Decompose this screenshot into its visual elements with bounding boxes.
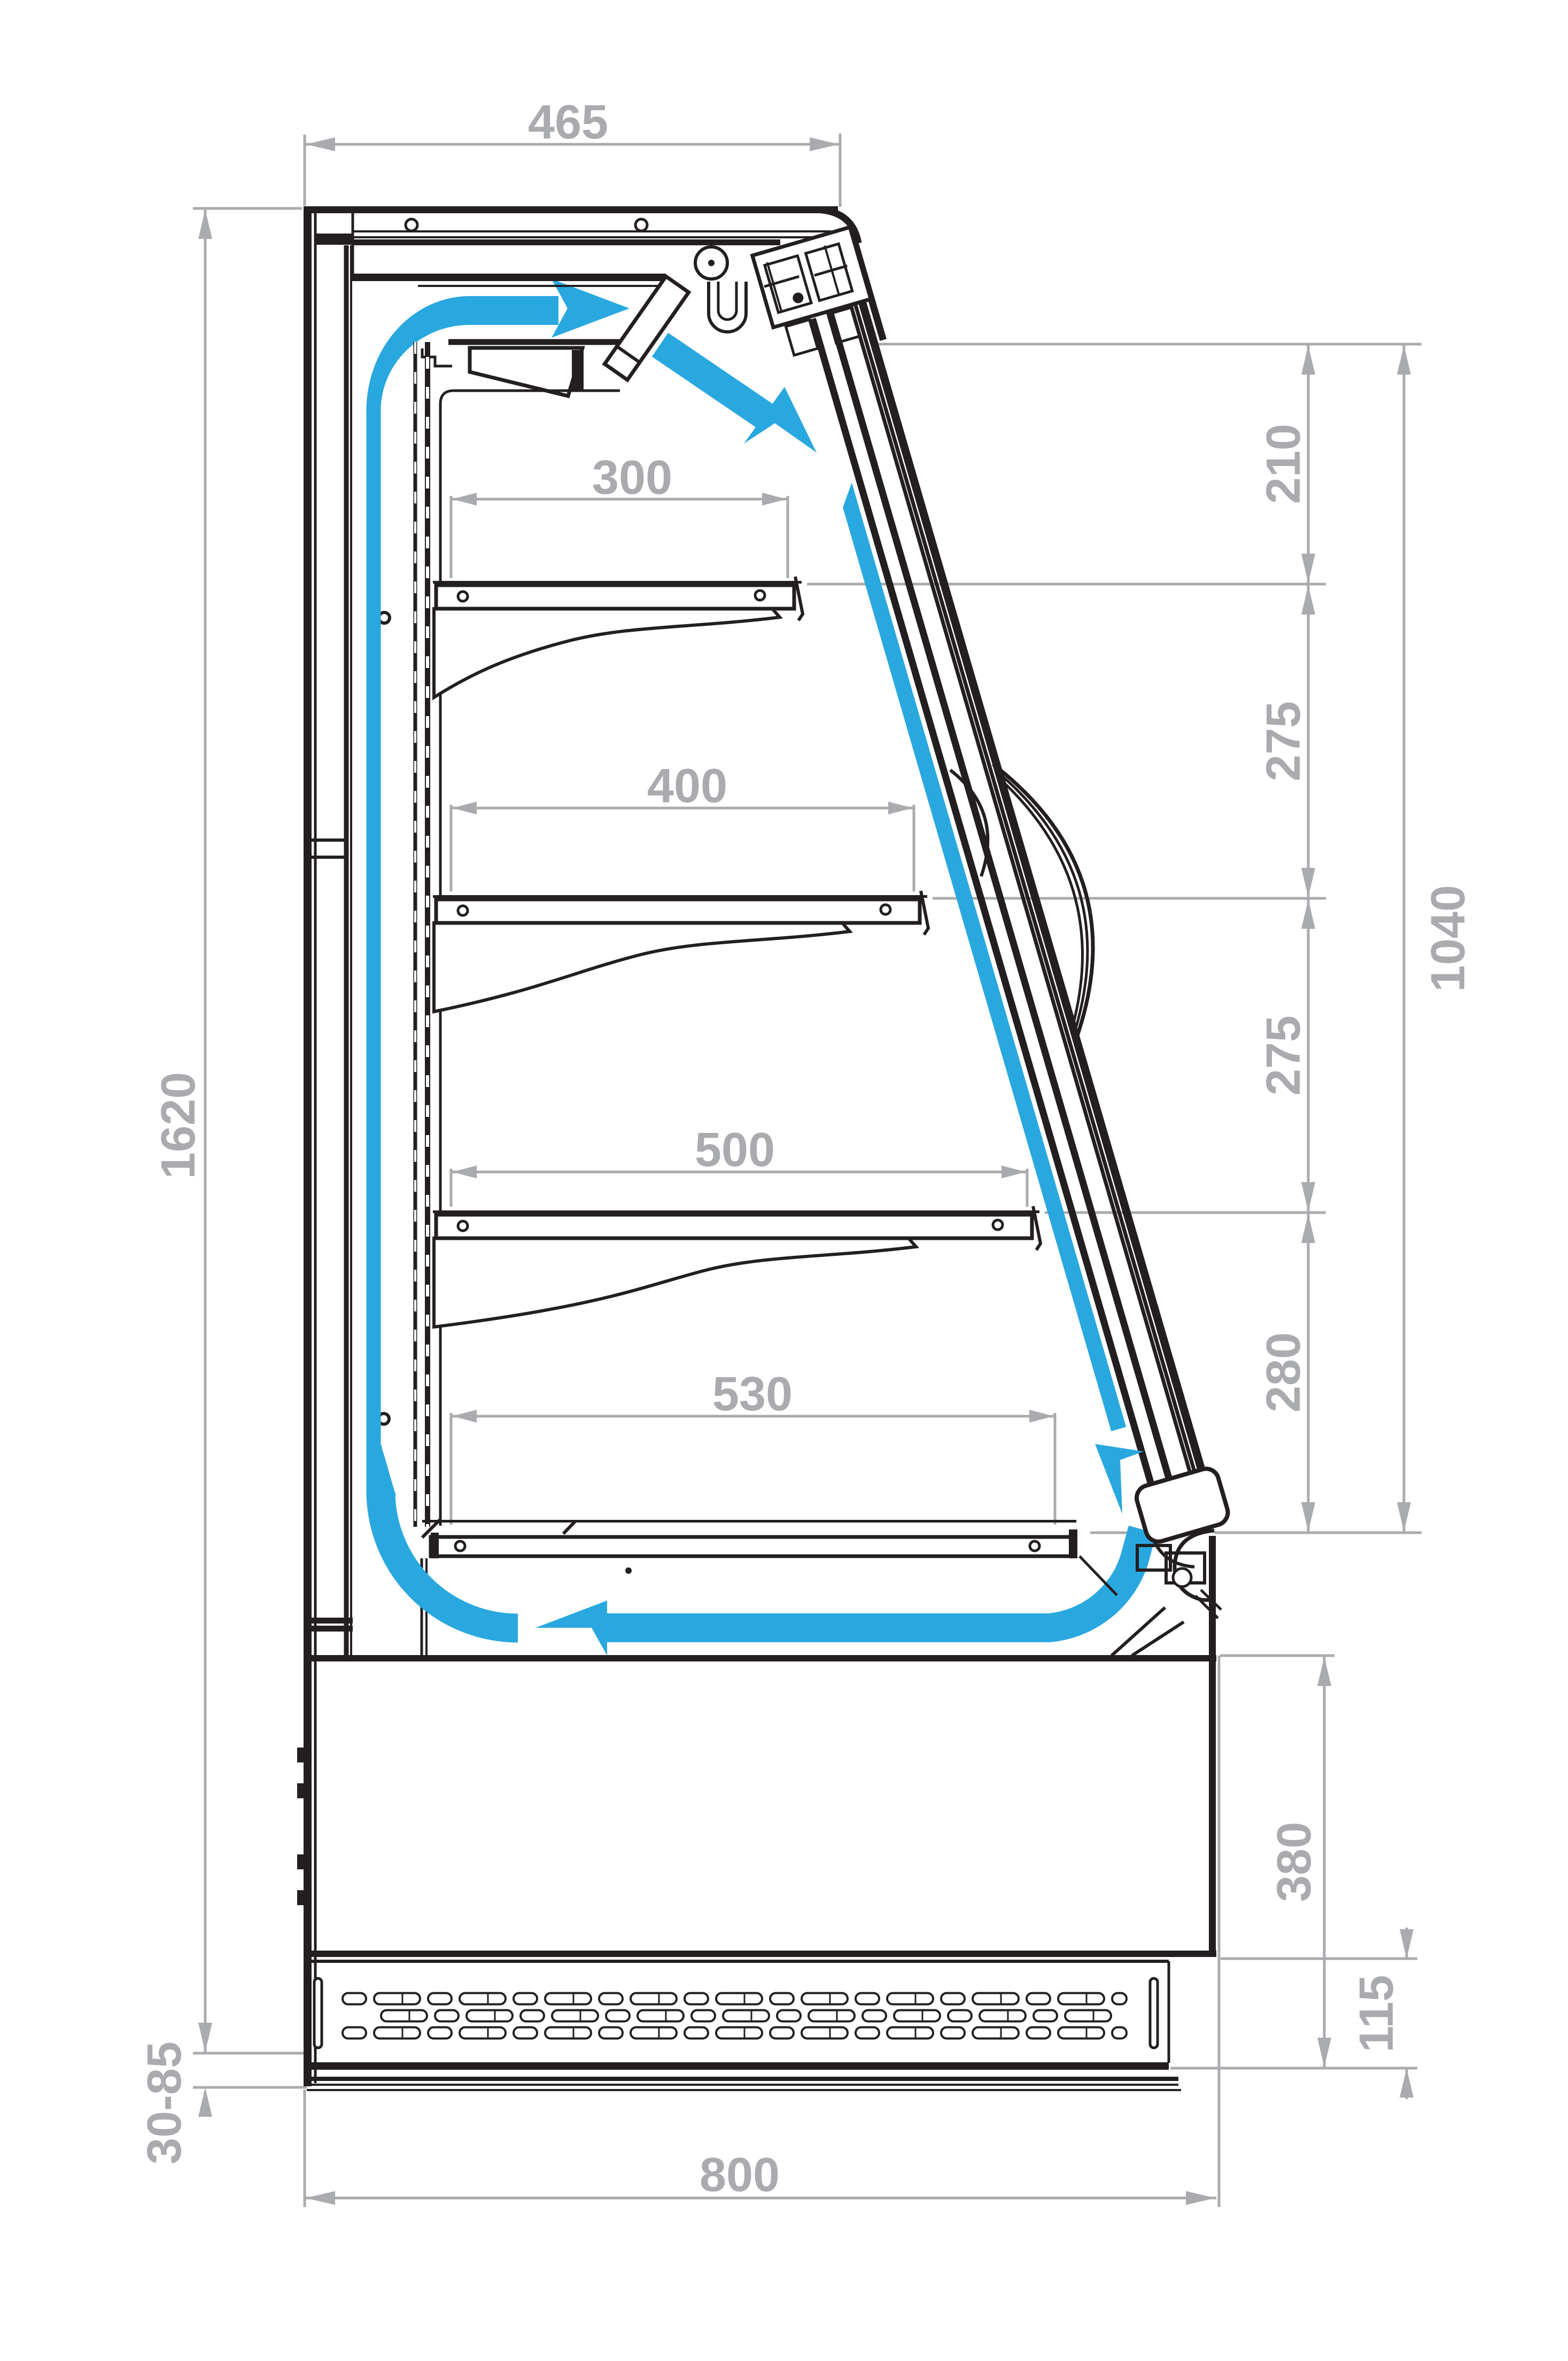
svg-text:400: 400 <box>647 759 727 813</box>
svg-text:210: 210 <box>1257 424 1310 504</box>
svg-text:1620: 1620 <box>152 1072 205 1179</box>
svg-text:275: 275 <box>1257 701 1310 781</box>
svg-text:300: 300 <box>592 451 672 504</box>
svg-text:500: 500 <box>695 1123 775 1177</box>
svg-text:1040: 1040 <box>1422 885 1475 992</box>
svg-text:380: 380 <box>1268 1822 1321 1902</box>
svg-text:530: 530 <box>712 1368 793 1421</box>
svg-text:800: 800 <box>700 2148 780 2202</box>
svg-text:115: 115 <box>1350 1975 1403 2052</box>
svg-text:465: 465 <box>528 96 608 149</box>
svg-text:280: 280 <box>1257 1332 1310 1412</box>
svg-text:30-85: 30-85 <box>138 2041 191 2164</box>
svg-text:275: 275 <box>1257 1015 1310 1096</box>
